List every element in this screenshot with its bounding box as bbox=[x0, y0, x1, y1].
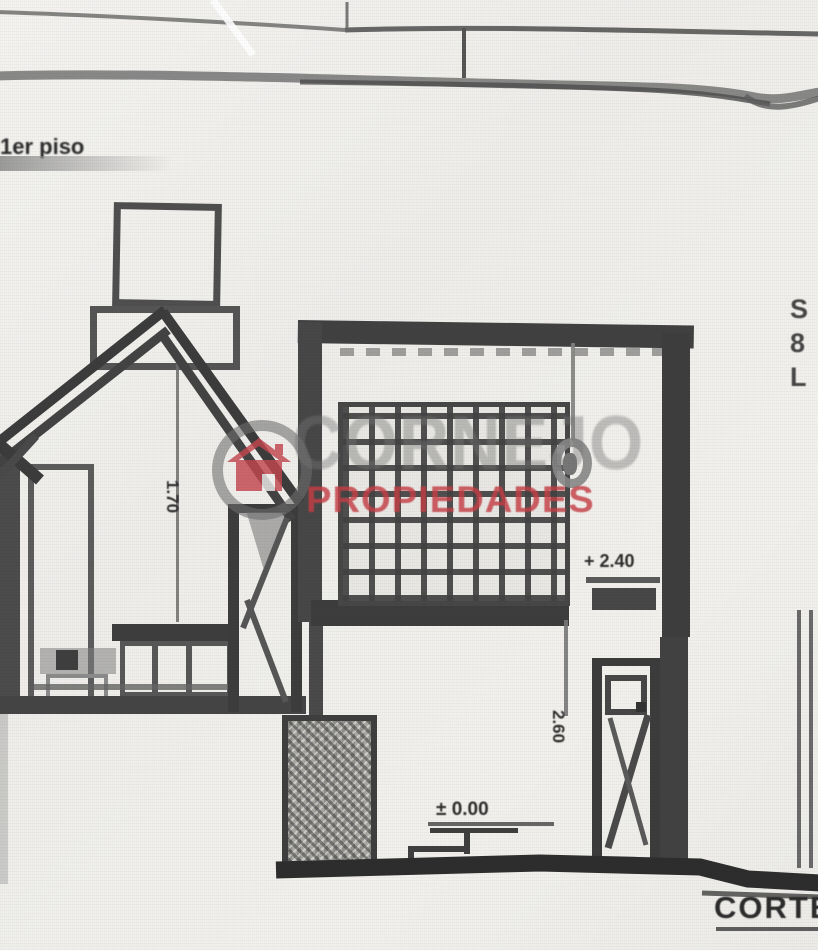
watermark-subtitle: PROPIEDADES bbox=[306, 479, 595, 521]
right-edge-label: S bbox=[790, 292, 818, 326]
house-icon bbox=[226, 436, 292, 494]
scanned-section-drawing: 1er piso 1.70 + 2.40 ± 0.00 2.60 S 8 L C… bbox=[0, 0, 818, 950]
bottom-title-underline bbox=[716, 927, 818, 931]
right-edge-labels: S 8 L bbox=[790, 292, 818, 396]
watermark-brand: CORNEJO bbox=[292, 400, 644, 487]
right-edge-label: L bbox=[790, 360, 818, 394]
paper-fold-line bbox=[213, 0, 253, 55]
ground-level-mark: ± 0.00 bbox=[436, 799, 489, 821]
scan-line-top-b bbox=[345, 28, 818, 34]
bottom-right-title-wrap: CORTE bbox=[712, 888, 818, 930]
title-underbar bbox=[0, 156, 172, 171]
scan-line-top-a bbox=[0, 12, 345, 30]
house-door bbox=[262, 474, 275, 491]
ground-floor-slab bbox=[276, 863, 818, 883]
house-chimney bbox=[275, 444, 283, 455]
roof-height-dimension: 1.70 bbox=[162, 480, 182, 513]
roof-left-outer bbox=[0, 310, 165, 452]
tall-door-diagonal-2 bbox=[247, 600, 286, 702]
door-height-dimension: 2.60 bbox=[548, 710, 568, 743]
upper-level-mark: + 2.40 bbox=[584, 551, 635, 572]
house-body bbox=[236, 460, 282, 491]
right-edge-label: 8 bbox=[790, 326, 818, 360]
bottom-right-title: CORTE bbox=[714, 890, 818, 926]
